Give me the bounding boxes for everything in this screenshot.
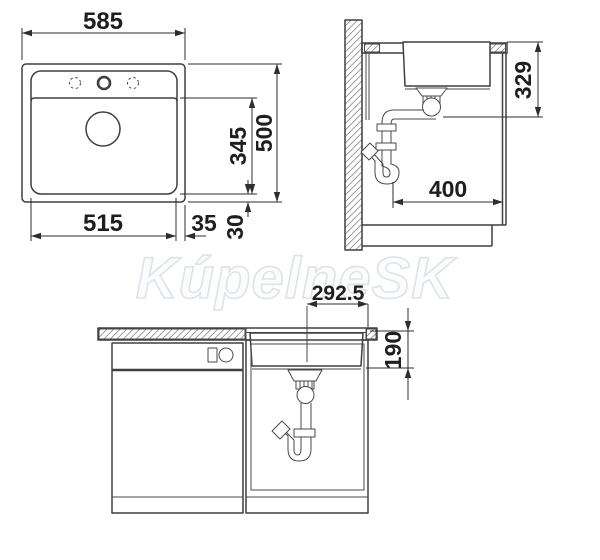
dim-overall-width: 585	[22, 8, 185, 60]
dim-install-depth: 400	[393, 176, 503, 208]
watermark: KúpelneSK	[136, 246, 457, 311]
control-knob	[219, 348, 233, 362]
siphon-front	[272, 370, 322, 461]
sink-outline-top	[22, 64, 185, 202]
dim-label-rim-front: 30	[222, 214, 248, 240]
dim-label-bowl-height: 190	[380, 331, 406, 369]
dim-label-overall-depth: 500	[251, 114, 277, 152]
dim-rim-side: 35	[185, 210, 217, 239]
cabinet-front-side	[503, 53, 507, 225]
countertop-front-hatch-left	[99, 329, 245, 339]
dim-label-rim-side: 35	[191, 210, 217, 236]
dim-bowl-height: 190	[366, 308, 414, 400]
cabinet-back-panel	[366, 53, 369, 120]
left-cabinet	[112, 343, 243, 513]
sink-dimension-drawing: KúpelneSK 585 500 345	[0, 0, 600, 560]
countertop-hatch-left	[365, 44, 380, 52]
tap-hole-center	[98, 77, 110, 89]
countertop-hatch-right	[490, 44, 506, 52]
wall-hatch	[345, 20, 362, 250]
control-rect	[208, 348, 217, 362]
plan-view: 585 500 345 515 35 30	[22, 8, 282, 241]
dim-bowl-depth: 345	[180, 98, 257, 194]
bowl-section-side	[403, 42, 490, 86]
dim-label-bowl-width: 515	[83, 210, 123, 237]
dim-label-drain-height: 329	[510, 61, 536, 99]
dim-drain-center: 292.5	[307, 282, 368, 327]
sink-technical-drawing-page: KúpelneSK 585 500 345	[0, 0, 600, 560]
dim-bowl-width: 515	[31, 198, 185, 241]
front-view: 292.5 190	[98, 282, 414, 513]
dim-label-install-depth: 400	[429, 176, 467, 202]
tap-hole-right	[128, 78, 139, 89]
siphon-side	[361, 88, 447, 184]
drain-hole	[86, 112, 120, 146]
dim-rim-front: 30	[222, 180, 251, 240]
dim-label-bowl-depth: 345	[225, 127, 251, 166]
cabinet-floor-plinth	[362, 225, 506, 246]
tap-hole-left	[70, 78, 81, 89]
dim-label-overall-width: 585	[83, 8, 123, 35]
side-view: 329 400	[345, 20, 543, 250]
dim-label-drain-center: 292.5	[312, 282, 365, 305]
bowl-edge-line	[31, 98, 177, 101]
